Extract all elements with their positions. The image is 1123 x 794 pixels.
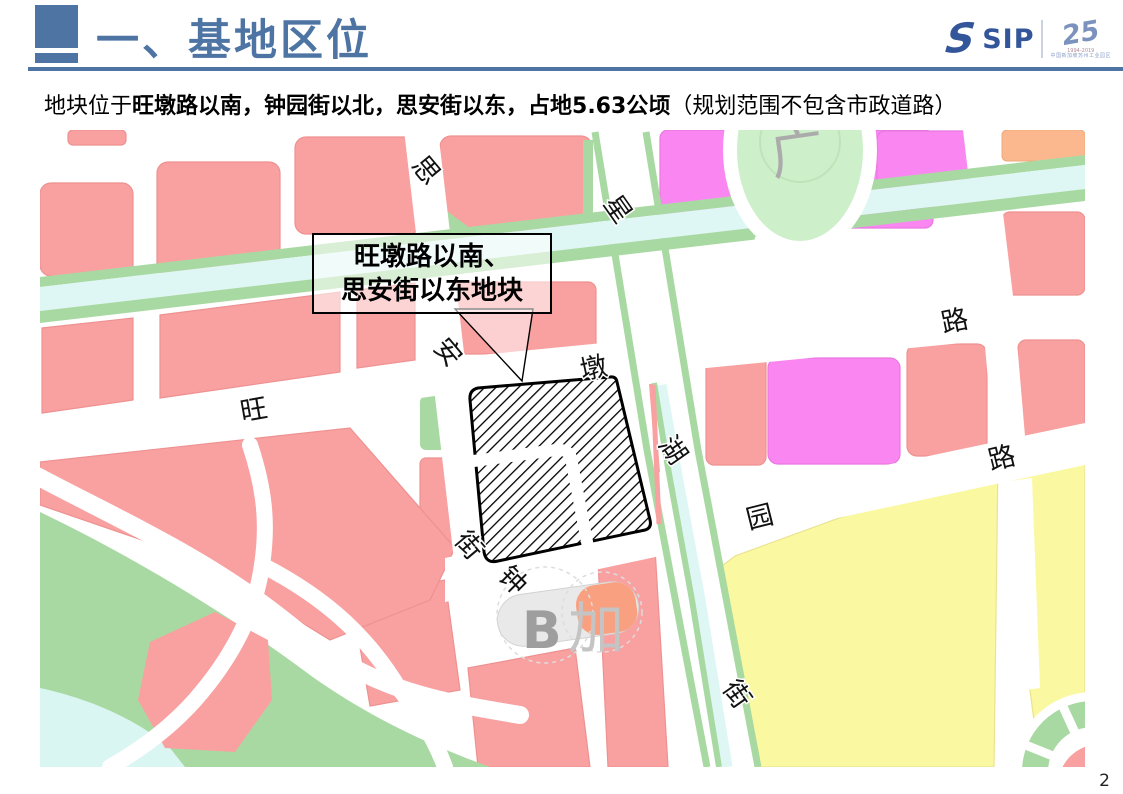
header-accent-square <box>35 5 78 48</box>
block <box>768 358 900 464</box>
callout-line2: 思安街以东地块 <box>341 274 523 308</box>
poi-plaza-glyph: 广 <box>766 130 828 188</box>
intro-sentence: 地块位于旺墩路以南，钟园街以北，思安街以东，占地5.63公顷（规划范围不包含市政… <box>44 88 956 120</box>
block <box>1002 212 1085 295</box>
zoning-map: 广 B 加 思 安 街 旺 墩 路 星 湖 街 钟 园 路 <box>40 130 1085 767</box>
poi-b-label: B <box>522 601 562 661</box>
intro-prefix: 地块位于 <box>44 94 132 119</box>
block <box>68 130 126 145</box>
intro-emphasis: 旺墩路以南，钟园街以北，思安街以东，占地5.63公顷 <box>132 94 670 119</box>
slide: { "header": { "title": "一、基地区位" }, "logo… <box>0 0 1123 794</box>
intro-suffix: （规划范围不包含市政道路） <box>670 94 956 119</box>
site-boundary-hatched <box>470 377 651 562</box>
callout-line1: 旺墩路以南、 <box>354 240 510 274</box>
anniversary-org: 中国新加坡苏州工业园区 <box>1050 54 1111 59</box>
road-label-wang: 旺 <box>238 393 270 428</box>
sip-logo: S SIP 25 1994-2019 中国新加坡苏州工业园区 <box>946 14 1111 64</box>
site-callout-box: 旺墩路以南、 思安街以东地块 <box>312 233 552 314</box>
header-rule <box>28 67 1123 71</box>
block <box>42 318 133 413</box>
poi-jia-label: 加 <box>568 597 624 662</box>
block <box>907 344 987 456</box>
header-accent-bar <box>35 53 78 63</box>
sip-swoosh-icon: S <box>944 18 978 61</box>
anniversary-25: 25 <box>1060 16 1102 49</box>
block <box>40 183 133 276</box>
block <box>1018 340 1085 437</box>
block <box>295 137 420 234</box>
page-number: 2 <box>1099 771 1110 791</box>
logo-divider <box>1041 20 1043 58</box>
page-title: 一、基地区位 <box>96 6 372 68</box>
anniversary-mark: 25 1994-2019 中国新加坡苏州工业园区 <box>1050 20 1111 59</box>
sip-logo-text: SIP <box>982 26 1034 53</box>
orange-block <box>1002 130 1085 161</box>
